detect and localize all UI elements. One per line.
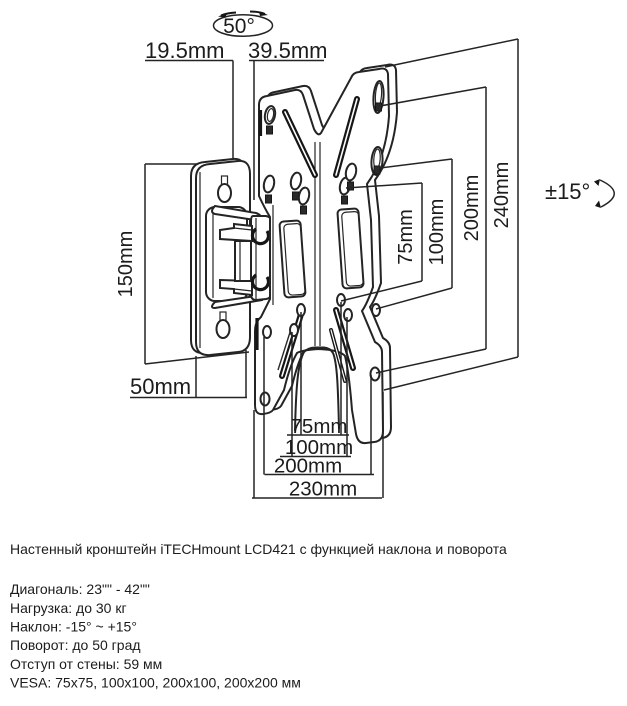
svg-text:230mm: 230mm [289,478,357,501]
svg-text:Поворот: до 50 град: Поворот: до 50 град [10,637,141,653]
svg-text:75mm: 75mm [395,209,417,265]
svg-text:39.5mm: 39.5mm [248,38,327,63]
svg-text:240mm: 240mm [491,162,513,229]
svg-text:150mm: 150mm [115,231,137,298]
svg-text:200mm: 200mm [274,455,342,478]
svg-text:75mm: 75mm [291,415,348,438]
svg-text:100mm: 100mm [426,199,448,266]
svg-text:Наклон: -15° ~ +15°: Наклон: -15° ~ +15° [10,619,137,635]
svg-text:VESA: 75x75, 100x100, 200x100,: VESA: 75x75, 100x100, 200x100, 200x200 м… [10,675,301,691]
svg-text:±15°: ±15° [545,179,590,204]
svg-text:50°: 50° [223,15,255,38]
svg-text:200mm: 200mm [461,175,483,242]
svg-text:19.5mm: 19.5mm [145,38,224,63]
svg-text:Отступ от стены: 59 мм: Отступ от стены: 59 мм [10,656,162,672]
svg-text:Нагрузка: до 30 кг: Нагрузка: до 30 кг [10,600,127,616]
svg-text:Диагональ: 23"" - 42"": Диагональ: 23"" - 42"" [10,581,150,597]
svg-text:50mm: 50mm [130,374,191,399]
svg-text:Настенный кронштейн iTECHmount: Настенный кронштейн iTECHmount LCD421 с … [10,541,507,557]
